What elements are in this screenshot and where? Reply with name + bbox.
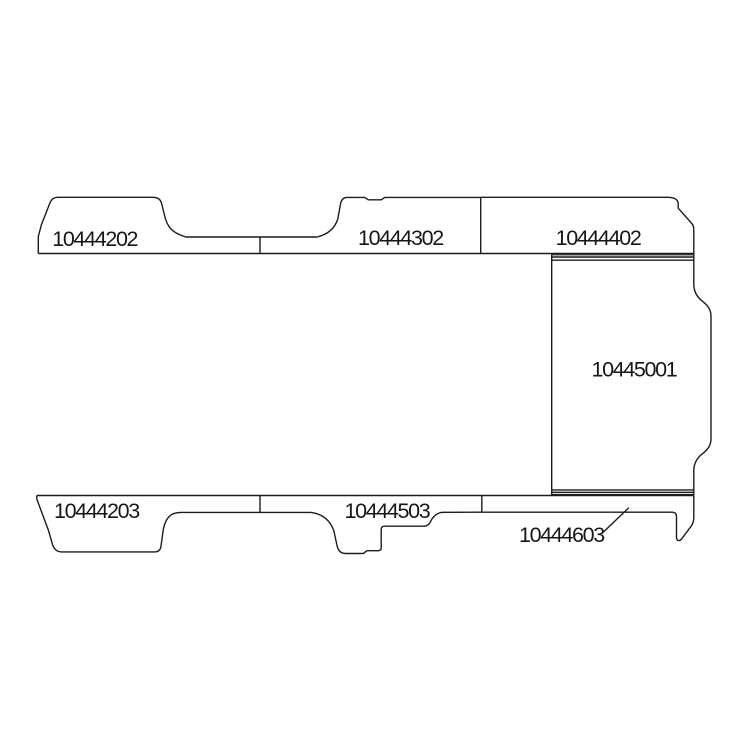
svg-text:10444402: 10444402 <box>556 226 641 250</box>
svg-text:10444302: 10444302 <box>358 226 443 250</box>
svg-text:10445001: 10445001 <box>592 358 677 382</box>
svg-text:10444503: 10444503 <box>345 499 431 523</box>
svg-text:10444203: 10444203 <box>54 499 140 523</box>
svg-text:10444202: 10444202 <box>52 227 137 251</box>
svg-text:10444603: 10444603 <box>519 523 605 547</box>
